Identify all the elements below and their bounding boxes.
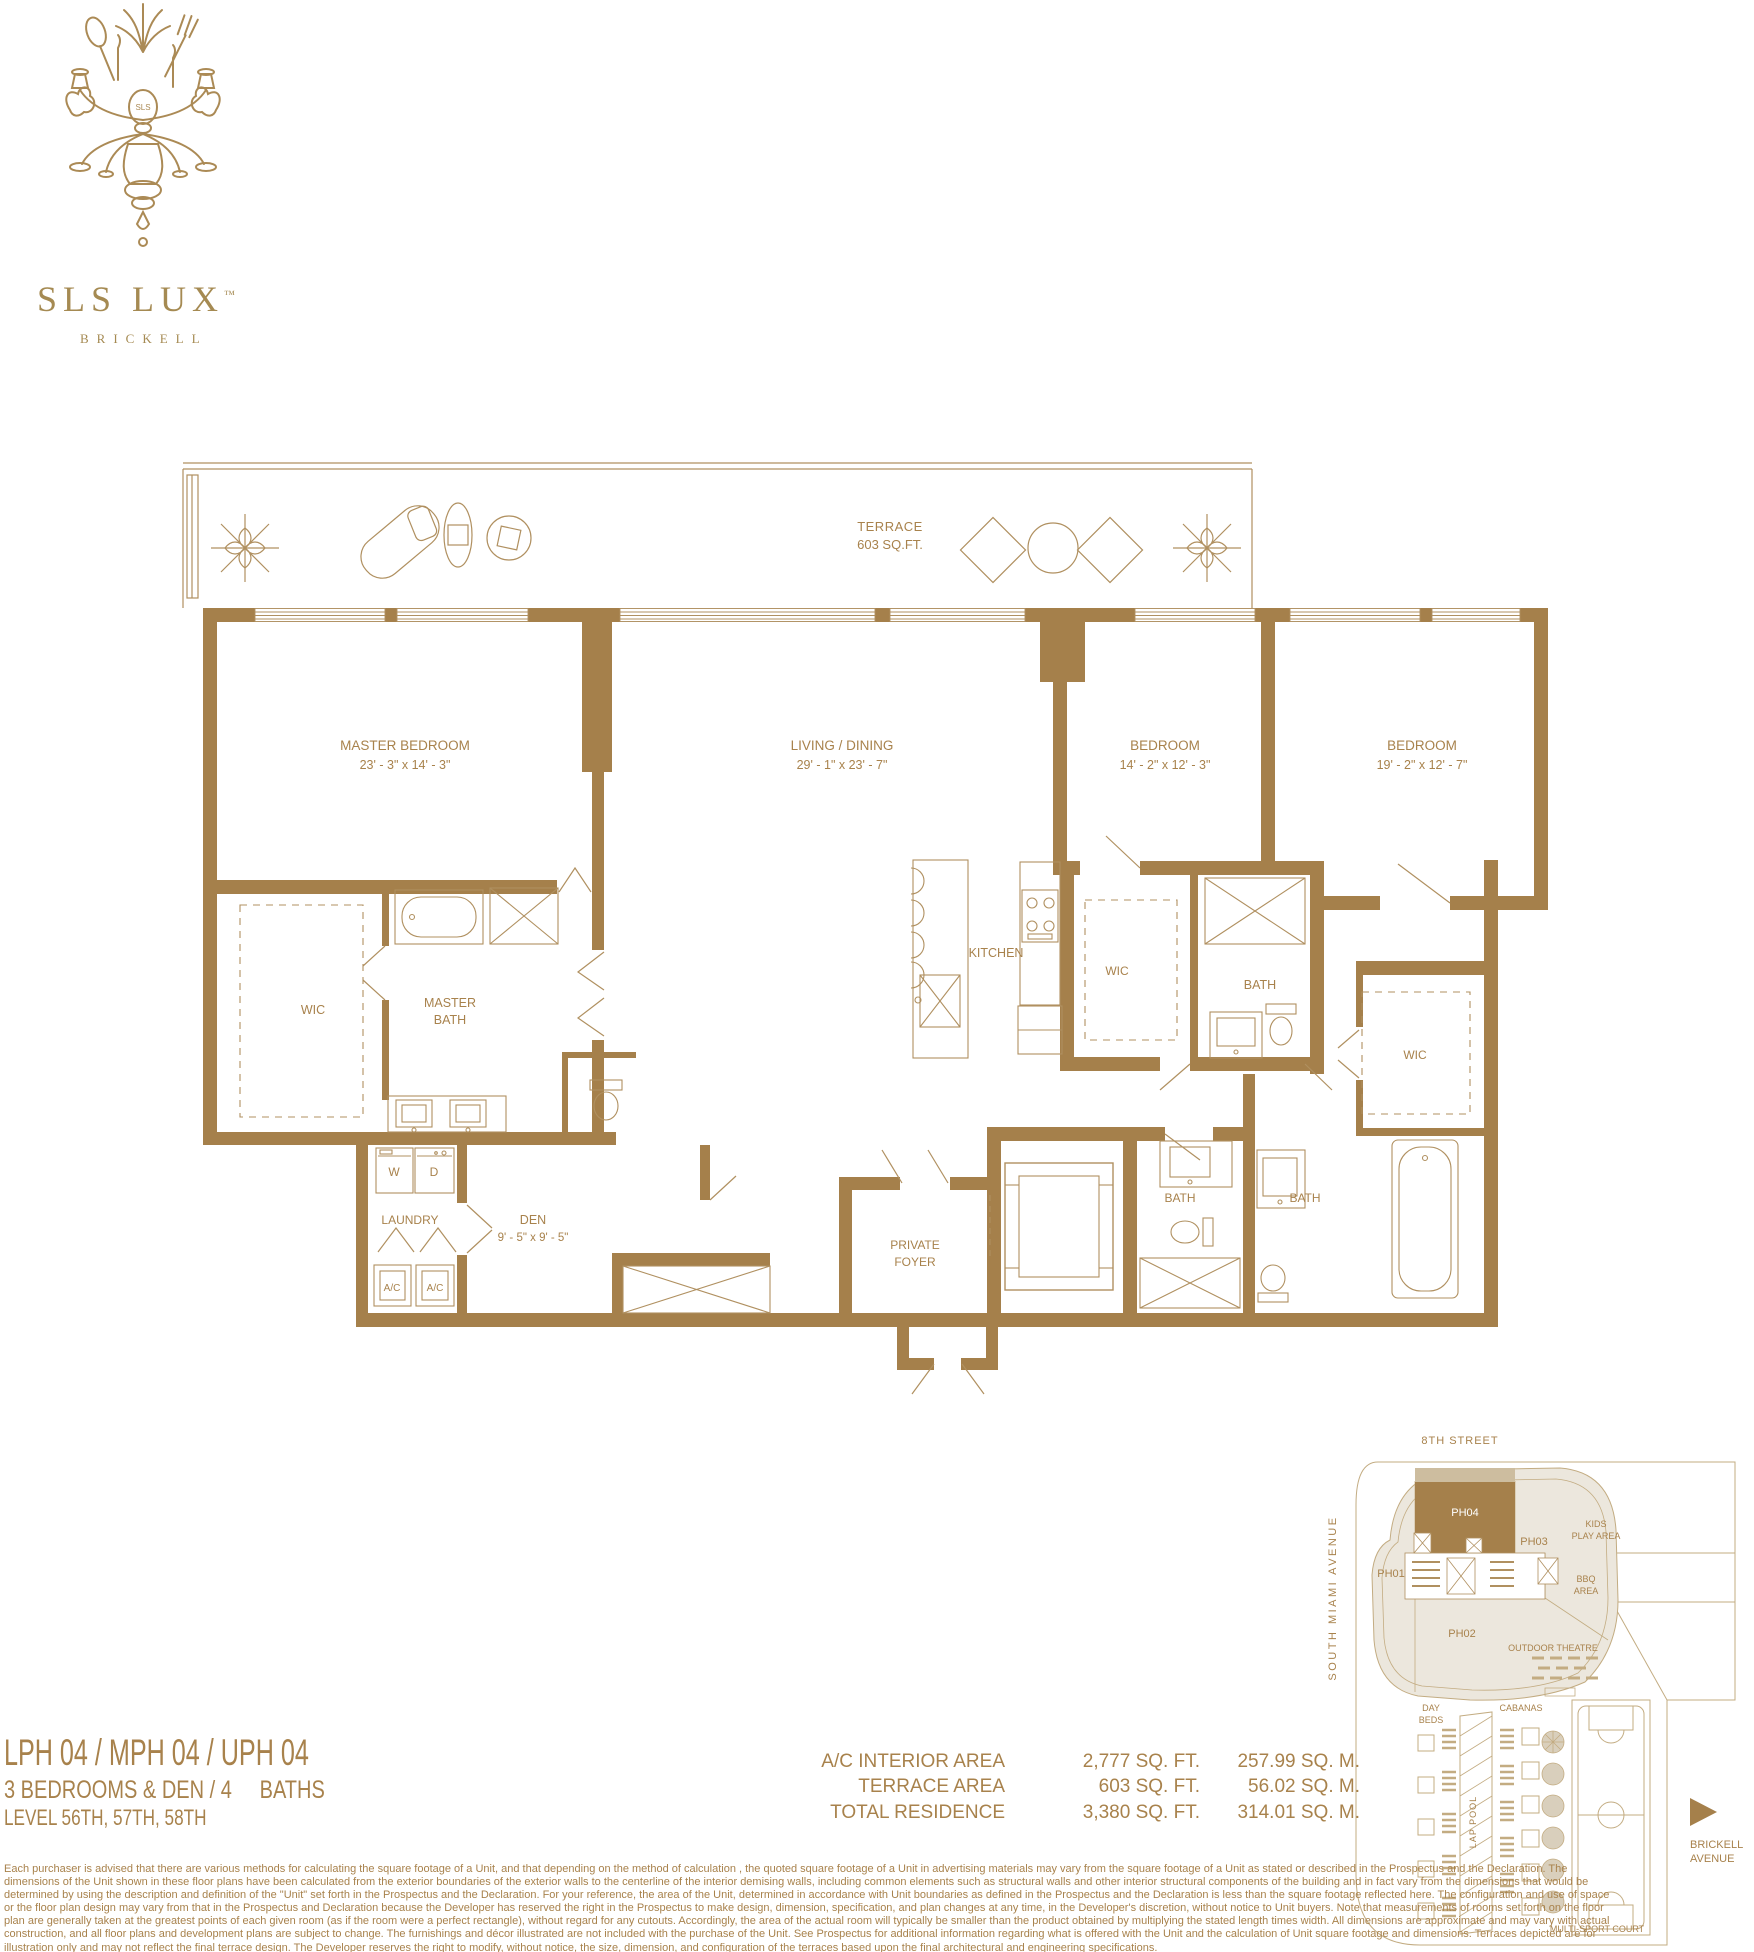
area-row-sqft: 603 SQ. FT. — [1005, 1776, 1200, 1801]
terrace-label: TERRACE — [857, 519, 923, 534]
foyer-label-1: PRIVATE — [890, 1238, 940, 1252]
brickell-avenue-label-2: AVENUE — [1690, 1853, 1734, 1865]
ph01-label: PH01 — [1377, 1568, 1405, 1580]
master-bath-label-1: MASTER — [424, 996, 476, 1010]
unit-title: LPH 04 / MPH 04 / UPH 04 — [4, 1734, 309, 1772]
area-row-label: TOTAL RESIDENCE — [700, 1802, 1005, 1827]
brand-logo: SLS — [18, 2, 318, 362]
area-row-sqm: 257.99 SQ. M. — [1200, 1751, 1360, 1776]
kids-area-label-1: KIDS — [1585, 1519, 1606, 1529]
living-dining-label: LIVING / DINING — [791, 738, 894, 753]
kids-area-label-2: PLAY AREA — [1572, 1531, 1621, 1541]
kitchen-label: KITCHEN — [969, 946, 1024, 960]
day-beds-label-1: DAY — [1422, 1703, 1440, 1713]
wic3-label: WIC — [1403, 1048, 1427, 1062]
dryer-label: D — [430, 1165, 439, 1179]
area-row-sqft: 3,380 SQ. FT. — [1005, 1802, 1200, 1827]
ph04-label: PH04 — [1451, 1507, 1479, 1519]
logo-medallion-text: SLS — [135, 103, 150, 112]
plant-icon — [211, 514, 1241, 582]
elevator — [990, 1163, 1113, 1290]
den-dims: 9' - 5" x 9' - 5" — [498, 1232, 569, 1244]
bedroom2-label: BEDROOM — [1387, 738, 1457, 753]
bath2-fixtures — [1140, 1141, 1240, 1308]
bedroom2-dims: 19' - 2" x 12' - 7" — [1377, 758, 1468, 772]
terrace-area-label: 603 SQ.FT. — [857, 537, 923, 552]
washer-label: W — [388, 1165, 400, 1179]
master-bedroom-dims: 23' - 3" x 14' - 3" — [360, 758, 451, 772]
terrace-furniture — [353, 497, 1143, 586]
bbq-area-label-1: BBQ — [1576, 1574, 1595, 1584]
legal-disclaimer: Each purchaser is advised that there are… — [4, 1863, 1610, 1952]
unit-configuration: 3 BEDROOMS & DEN / 4 BATHS — [4, 1778, 325, 1803]
foyer-label-2: FOYER — [894, 1255, 936, 1269]
ac1-label: A/C — [384, 1283, 401, 1294]
den-label: DEN — [520, 1213, 546, 1227]
bath3-label: BATH — [1289, 1191, 1320, 1205]
area-row-sqm: 56.02 SQ. M. — [1200, 1776, 1360, 1801]
brickell-arrow-icon — [1690, 1798, 1717, 1826]
brickell-avenue-label-1: BRICKELL — [1690, 1839, 1743, 1851]
master-bath-label-2: BATH — [434, 1013, 466, 1027]
chandelier-logo-icon: SLS — [18, 2, 268, 267]
bath2-label: BATH — [1164, 1191, 1195, 1205]
bedroom1-dims: 14' - 2" x 12' - 3" — [1120, 758, 1211, 772]
storage-closet — [623, 1266, 770, 1313]
bedroom1-label: BEDROOM — [1130, 738, 1200, 753]
ph03-label: PH03 — [1520, 1536, 1548, 1548]
bedroom1-wic-closet — [1085, 900, 1177, 1040]
doors — [363, 836, 1450, 1394]
outdoor-theatre-label: OUTDOOR THEATRE — [1508, 1643, 1598, 1653]
floorplan-brochure-page: SLS SLS LUX™ BRICKELL — [0, 0, 1754, 1952]
living-dining-dims: 29' - 1" x 23' - 7" — [797, 758, 888, 772]
cabanas-label: CABANAS — [1499, 1703, 1542, 1713]
area-table: A/C INTERIOR AREA 2,777 SQ. FT. 257.99 S… — [700, 1751, 1360, 1827]
street-8th-label: 8TH STREET — [1421, 1435, 1498, 1447]
room-labels: MASTER BEDROOM 23' - 3" x 14' - 3" LIVIN… — [301, 738, 1468, 1294]
area-row-sqm: 314.01 SQ. M. — [1200, 1802, 1360, 1827]
area-row-label: A/C INTERIOR AREA — [700, 1751, 1005, 1776]
ac2-label: A/C — [427, 1283, 444, 1294]
wic2-label: WIC — [1105, 964, 1129, 978]
master-wic-label: WIC — [301, 1003, 325, 1017]
ph04-roof-strip — [1415, 1468, 1515, 1482]
area-row-label: TERRACE AREA — [700, 1776, 1005, 1801]
ph02-label: PH02 — [1448, 1628, 1476, 1640]
area-row-sqft: 2,777 SQ. FT. — [1005, 1751, 1200, 1776]
bbq-area-label-2: AREA — [1574, 1586, 1599, 1596]
laundry-label: LAUNDRY — [381, 1213, 438, 1227]
master-bedroom-label: MASTER BEDROOM — [340, 738, 470, 753]
terrace: TERRACE 603 SQ.FT. — [183, 463, 1252, 608]
master-bath-fixtures — [388, 888, 622, 1132]
walls — [203, 608, 1548, 1370]
street-south-miami-label: SOUTH MIAMI AVENUE — [1327, 1515, 1339, 1680]
bath1-fixtures — [1205, 878, 1305, 1058]
bath3-fixtures — [1257, 1140, 1458, 1302]
unit-level: LEVEL 56TH, 57TH, 58TH — [4, 1807, 207, 1829]
lap-pool-label: LAP POOL — [1468, 1796, 1478, 1848]
day-beds-label-2: BEDS — [1419, 1715, 1444, 1725]
bath1-label: BATH — [1244, 978, 1276, 992]
